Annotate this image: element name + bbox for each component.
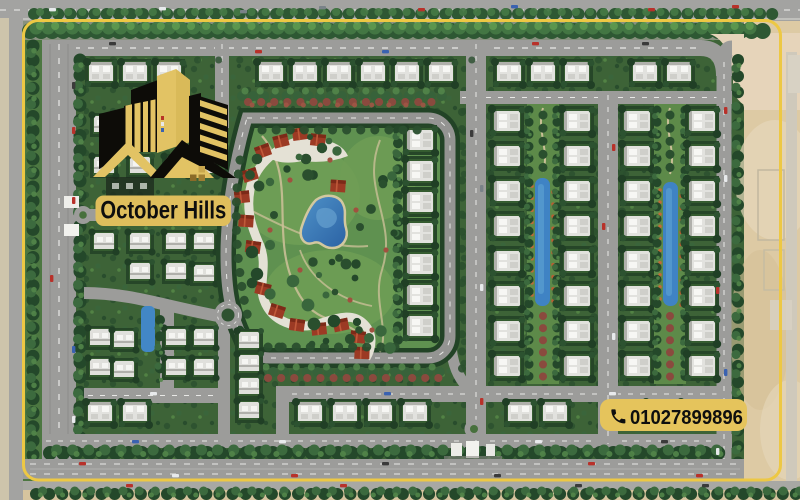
svg-text:01027899896: 01027899896 (630, 406, 743, 429)
svg-text:October Hills: October Hills (100, 195, 226, 224)
